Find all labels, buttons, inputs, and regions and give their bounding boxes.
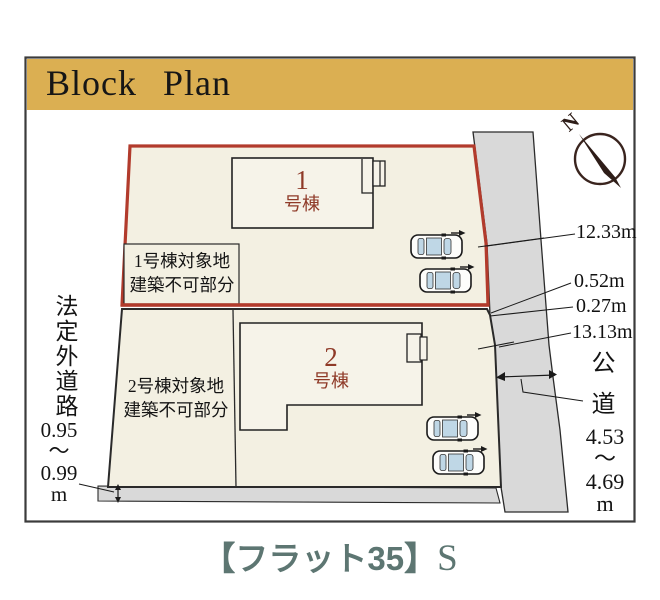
page-title: Block Plan bbox=[46, 62, 231, 104]
measurement-0-27m: 0.27m bbox=[576, 295, 627, 318]
building1-label: 1 号棟 bbox=[252, 167, 352, 215]
building2-number: 2 bbox=[281, 344, 381, 371]
flat35-label: 【フラット35】 bbox=[202, 540, 437, 577]
east-road-name: 公道 bbox=[583, 350, 618, 432]
west-road-width-range: 0.95 〜 0.99 m bbox=[30, 420, 88, 506]
west-road-name: 法定外道路 bbox=[47, 294, 81, 419]
flat35-suffix: S bbox=[437, 538, 458, 579]
east-road-width-range: 4.53 〜 4.69 m bbox=[576, 426, 634, 516]
lot2-restriction-note: 2号棟対象地 建築不可部分 bbox=[116, 374, 236, 422]
building1-number: 1 bbox=[252, 167, 352, 194]
building2-label: 2 号棟 bbox=[281, 344, 381, 392]
measurement-0-52m: 0.52m bbox=[574, 270, 625, 293]
footer-caption: 【フラット35】S bbox=[0, 532, 660, 580]
block-plan-page: Block Plan N 1 号棟 2 号棟 1号棟対象地 建築不可部分 2号棟… bbox=[0, 0, 660, 600]
building1-suffix: 号棟 bbox=[252, 194, 352, 215]
west-road-area bbox=[98, 486, 500, 503]
lot1-restriction-note: 1号棟対象地 建築不可部分 bbox=[126, 249, 238, 297]
measurement-13-13m: 13.13m bbox=[572, 321, 633, 344]
measurement-12-33m: 12.33m bbox=[576, 221, 637, 244]
building2-suffix: 号棟 bbox=[281, 371, 381, 392]
